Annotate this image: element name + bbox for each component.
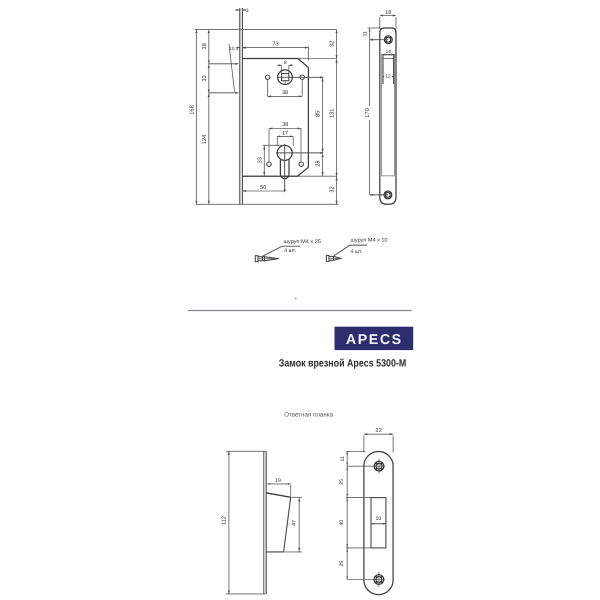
svg-text:28: 28 xyxy=(316,160,322,166)
svg-text:73: 73 xyxy=(272,41,278,47)
svg-text:131: 131 xyxy=(330,109,336,119)
svg-text:APECS: APECS xyxy=(346,332,403,348)
svg-text:11: 11 xyxy=(362,31,368,36)
svg-text:22: 22 xyxy=(375,428,381,434)
svg-text:Ответная планка: Ответная планка xyxy=(284,411,334,418)
svg-text:40: 40 xyxy=(339,520,345,526)
svg-text:18: 18 xyxy=(385,10,391,16)
svg-text:11: 11 xyxy=(340,456,346,461)
svg-text:38: 38 xyxy=(202,43,208,49)
svg-text:3: 3 xyxy=(246,8,249,14)
svg-text:85: 85 xyxy=(316,111,322,117)
svg-text:шуруп М4 х 25: шуруп М4 х 25 xyxy=(284,239,322,245)
svg-text:25: 25 xyxy=(339,479,345,485)
svg-text:10: 10 xyxy=(376,516,382,522)
svg-text:25: 25 xyxy=(339,561,345,567)
svg-text:32: 32 xyxy=(330,186,336,192)
svg-text:8: 8 xyxy=(284,60,287,66)
svg-text:12: 12 xyxy=(385,73,391,79)
svg-text:10,4: 10,4 xyxy=(229,46,239,51)
svg-text:19: 19 xyxy=(275,478,281,484)
svg-text:32: 32 xyxy=(330,41,336,47)
svg-text:17: 17 xyxy=(282,130,288,136)
svg-text:47: 47 xyxy=(292,520,298,526)
svg-text:112: 112 xyxy=(222,516,228,525)
svg-text:4 шт.: 4 шт. xyxy=(284,248,296,254)
svg-text:Замок врезной Apecs 5300-М: Замок врезной Apecs 5300-М xyxy=(279,357,407,369)
svg-text:33: 33 xyxy=(202,75,208,81)
svg-text:50: 50 xyxy=(260,185,266,191)
svg-text:168: 168 xyxy=(189,105,195,115)
svg-text:38: 38 xyxy=(282,122,288,128)
svg-text:шуруп М4 х 10: шуруп М4 х 10 xyxy=(351,237,388,243)
svg-text:38: 38 xyxy=(282,90,288,96)
svg-text:4 шт.: 4 шт. xyxy=(351,249,363,255)
svg-text:124: 124 xyxy=(202,135,208,145)
svg-text:33: 33 xyxy=(258,157,264,163)
svg-text:170: 170 xyxy=(365,108,371,118)
